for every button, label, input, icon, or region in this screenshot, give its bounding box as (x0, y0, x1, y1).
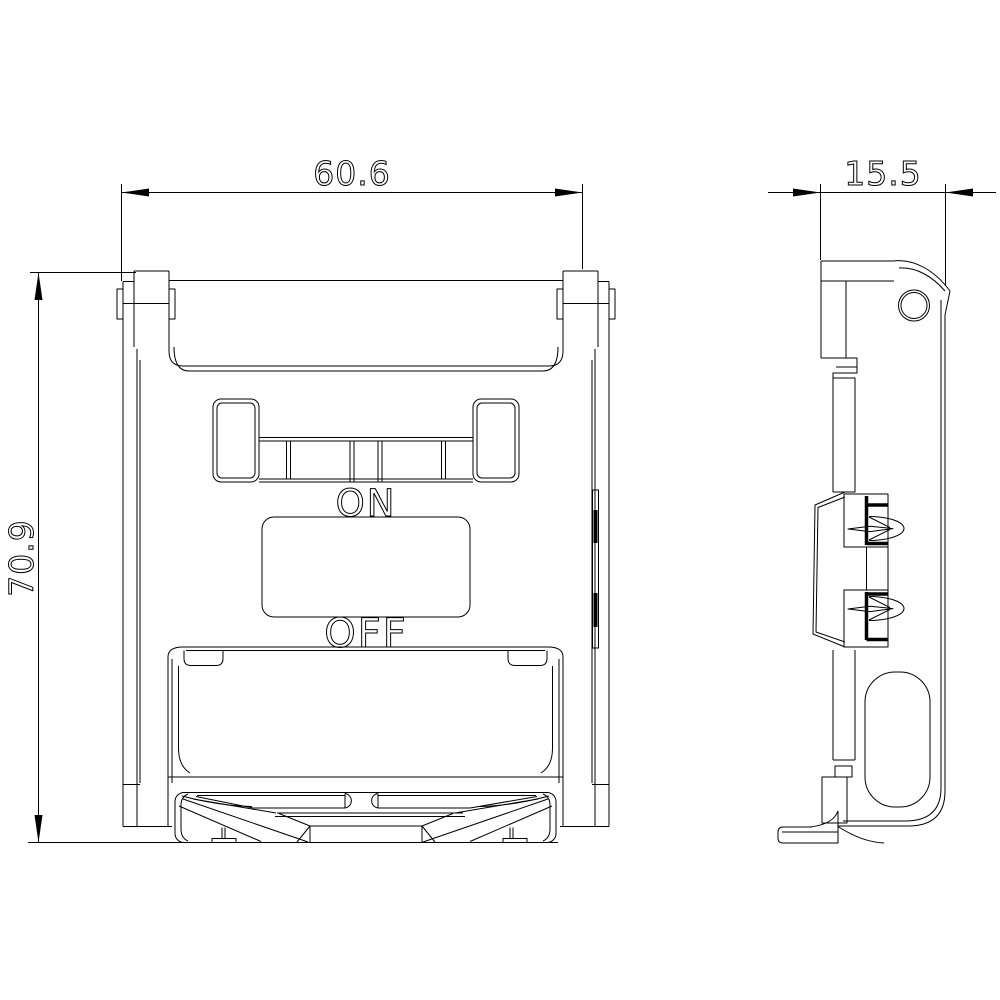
dimension-height: 70.9 (2, 273, 176, 843)
dim-arrow-left (122, 189, 150, 197)
side-view (778, 261, 950, 843)
dim-height-value: 70.9 (2, 519, 41, 596)
hinge-pin (169, 289, 175, 319)
din-latch (28, 793, 558, 843)
dim-depth-value: 15.5 (844, 154, 921, 193)
cad-drawing: 60.6 70.9 15.5 (0, 0, 1000, 1000)
front-view: ON OFF (28, 271, 615, 843)
label-window (262, 517, 470, 617)
dim-arrow-up (35, 273, 43, 301)
toggle-window (213, 399, 519, 482)
bottom-foot (778, 811, 884, 843)
mounting-hole (899, 290, 930, 321)
terminal-clamp-upper (844, 494, 904, 547)
dim-arrow-right (555, 189, 583, 197)
dimension-depth: 15.5 (768, 154, 996, 285)
terminal-clamp-lower (844, 590, 904, 647)
on-label: ON (336, 482, 397, 525)
dim-width-value: 60.6 (313, 154, 390, 193)
hinge-pin (609, 289, 615, 319)
hinge-pin (557, 289, 563, 319)
dim-arrow-in-left (793, 189, 821, 197)
dimension-width: 60.6 (122, 154, 583, 281)
dim-arrow-down (35, 815, 43, 843)
oblong-slot (865, 672, 930, 807)
hinge-pin (117, 289, 123, 319)
dim-arrow-in-right (946, 189, 974, 197)
technical-drawing-canvas: 60.6 70.9 15.5 (0, 0, 1000, 1000)
lower-panel (168, 647, 563, 827)
